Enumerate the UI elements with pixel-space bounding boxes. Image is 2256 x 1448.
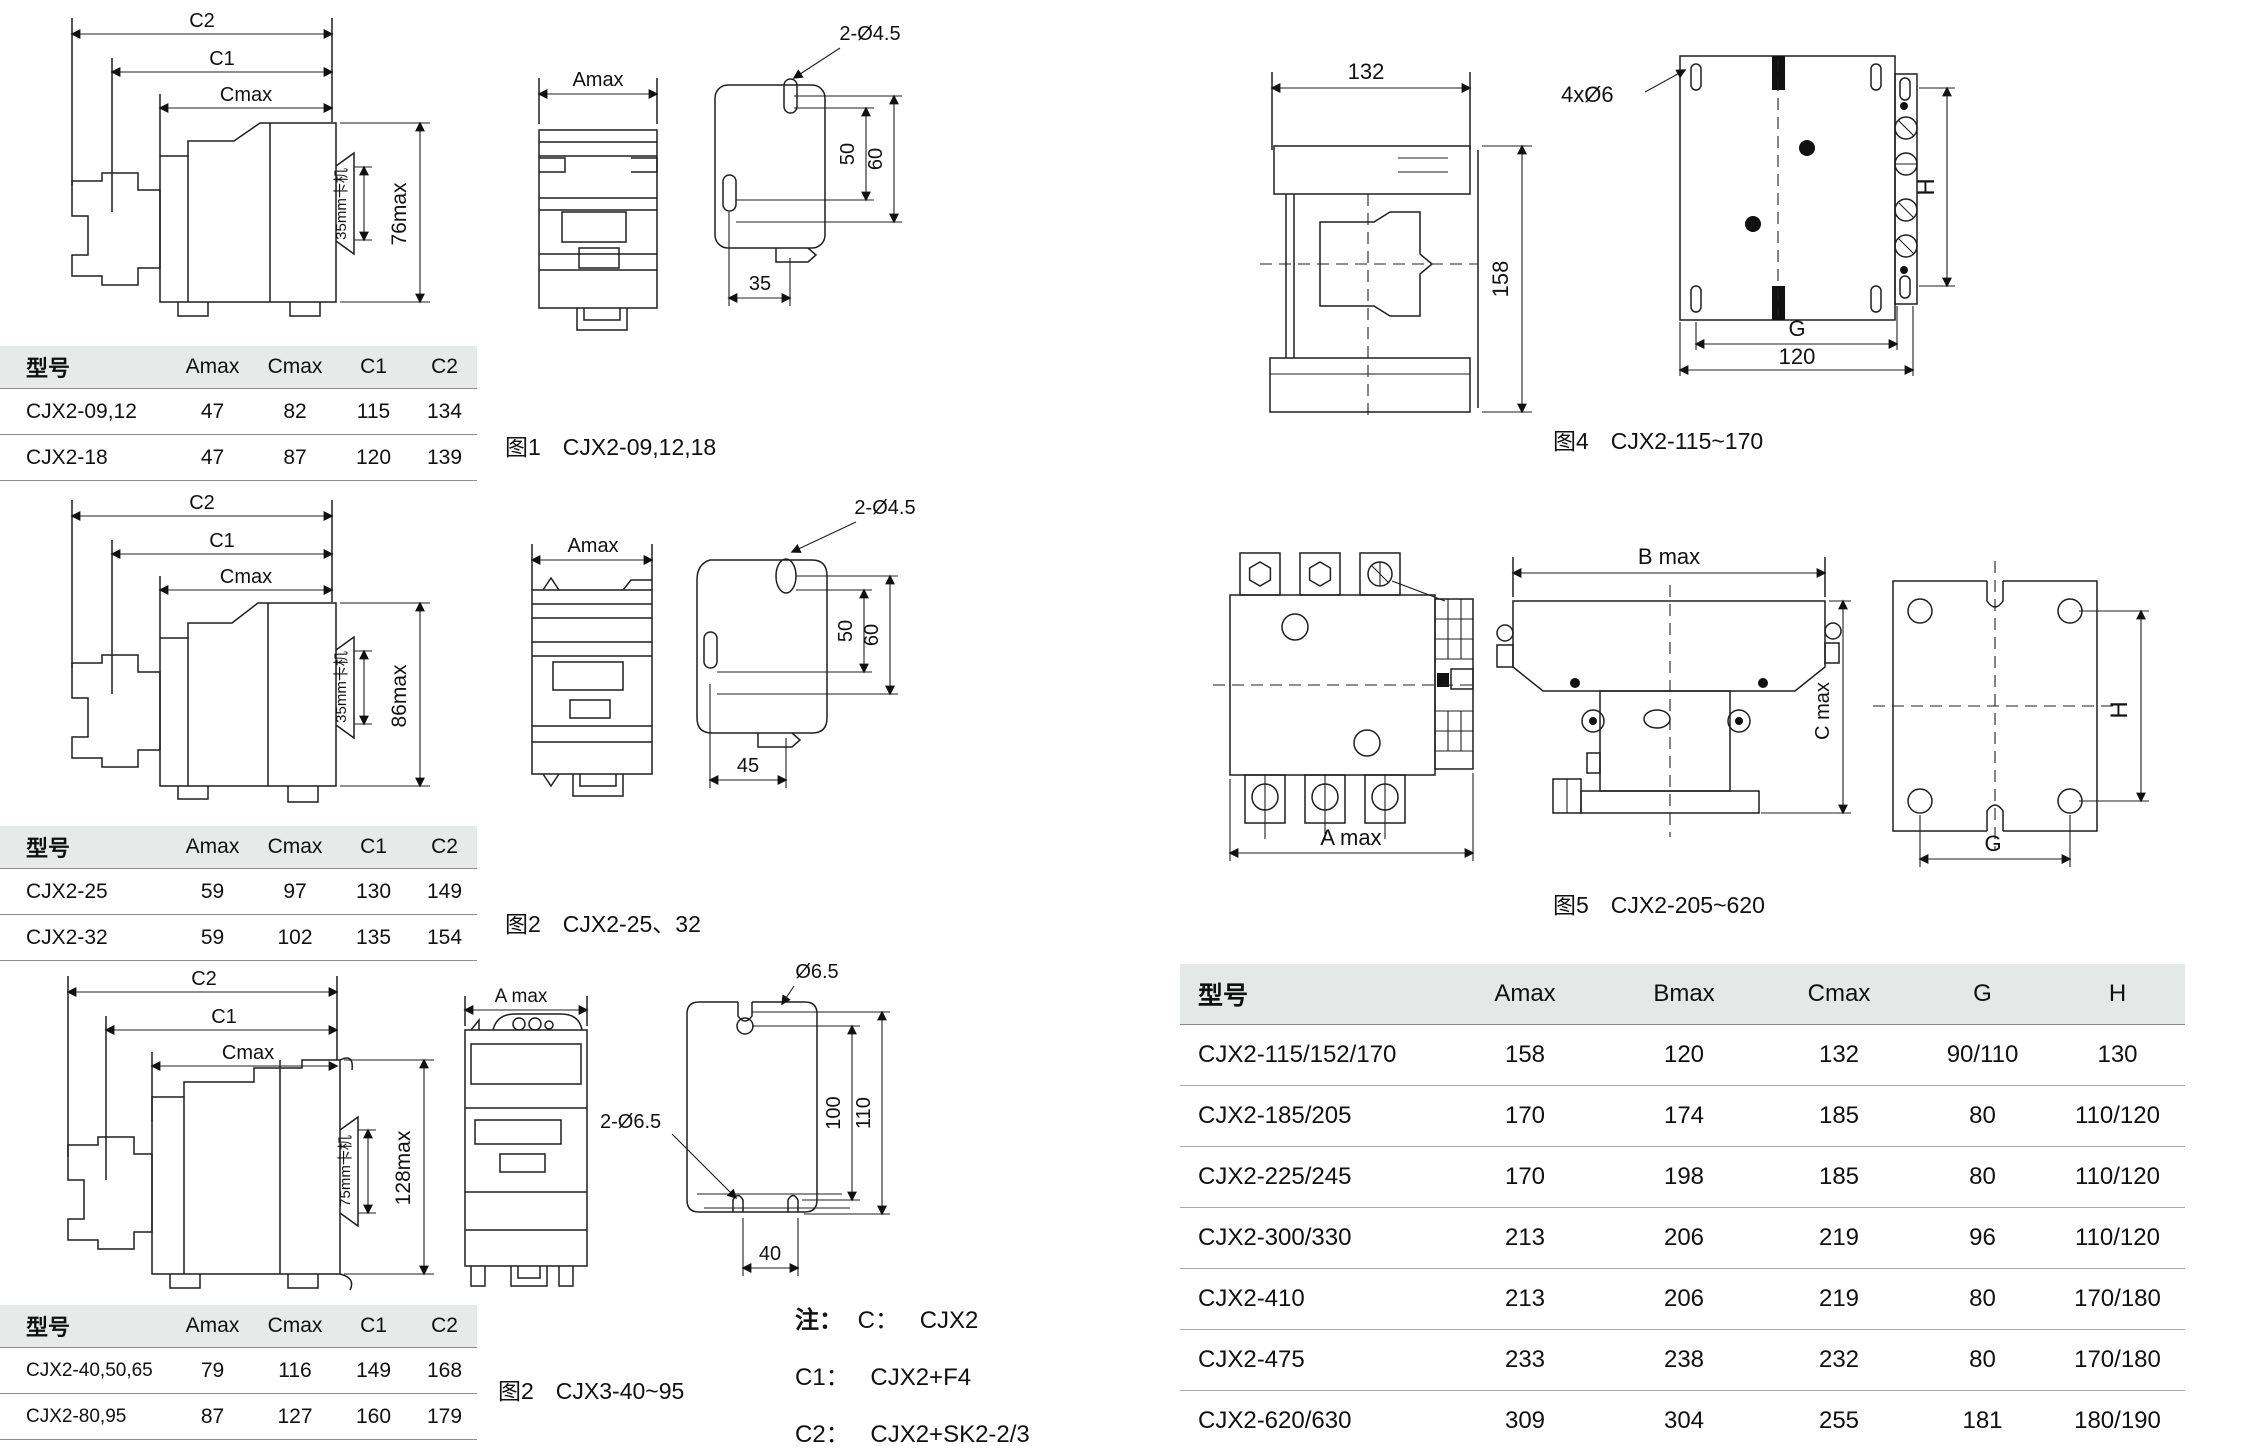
fig2-caption-text: CJX2-25、32 bbox=[563, 911, 701, 937]
fig1-holes-label: 2-Ø4.5 bbox=[839, 23, 900, 45]
t2-r2-c2: 154 bbox=[412, 915, 477, 961]
fig5-dim-h: H bbox=[2106, 701, 2133, 718]
fig4-dim-h: H bbox=[1913, 178, 1940, 195]
t1-r2-model: CJX2-18 bbox=[0, 435, 170, 481]
fig1-dim-60: 60 bbox=[865, 148, 887, 170]
t1-r2-c2: 139 bbox=[412, 435, 477, 481]
fig3-dim-40: 40 bbox=[759, 1243, 781, 1265]
fig1-mounting-view-drawing: 2-Ø4.5 50 60 35 bbox=[690, 12, 925, 327]
t2-header-cmax: Cmax bbox=[255, 826, 335, 869]
fig1-dim-height: 76max bbox=[388, 182, 411, 246]
t3-header-cmax: Cmax bbox=[255, 1305, 335, 1348]
fig3-mount-dimensions bbox=[672, 986, 890, 1276]
fig4-caption-number: 图4 bbox=[1553, 428, 1589, 454]
bt-r3-amax: 170 bbox=[1445, 1147, 1605, 1208]
t3-r1-cmax: 116 bbox=[255, 1348, 335, 1394]
table-row: CJX2-32 59 102 135 154 bbox=[0, 915, 477, 961]
t2-r1-c2: 149 bbox=[412, 869, 477, 915]
fig2-dim-cmax: Cmax bbox=[220, 566, 272, 588]
bt-r7-cmax: 255 bbox=[1763, 1391, 1915, 1448]
fig2-dim-50: 50 bbox=[835, 620, 857, 642]
t3-header-amax: Amax bbox=[170, 1305, 255, 1348]
fig5-side-view-drawing: B max C max bbox=[1495, 515, 1855, 845]
fig2-mounting-view-drawing: 2-Ø4.5 50 60 45 bbox=[640, 486, 930, 811]
fig5-dim-g: G bbox=[1984, 831, 2001, 856]
bt-r6-h: 170/180 bbox=[2050, 1330, 2185, 1391]
fig4-dim-120: 120 bbox=[1779, 344, 1816, 369]
fig2-holes-label: 2-Ø4.5 bbox=[854, 497, 915, 519]
t2-r1-cmax: 97 bbox=[255, 869, 335, 915]
table-row: CJX2-40,50,65 79 116 149 168 bbox=[0, 1348, 477, 1394]
fig3-caption-number: 图2 bbox=[498, 1378, 534, 1404]
fig2-dim-c2: C2 bbox=[189, 492, 215, 514]
bt-r5-cmax: 219 bbox=[1763, 1269, 1915, 1330]
t1-r1-amax: 47 bbox=[170, 389, 255, 435]
fig3-dim-c2: C2 bbox=[191, 968, 217, 990]
fig5-mounting-view-drawing: H G bbox=[1865, 545, 2165, 875]
bt-r1-cmax: 132 bbox=[1763, 1025, 1915, 1086]
table-row: CJX2-475 233 238 232 80 170/180 bbox=[1180, 1330, 2185, 1391]
t3-r1-c2: 168 bbox=[412, 1348, 477, 1394]
fig5-mount-dimensions bbox=[1920, 611, 2149, 867]
bt-r3-h: 110/120 bbox=[2050, 1147, 2185, 1208]
fig3-dim-amax: A max bbox=[495, 986, 548, 1007]
t3-r1-model: CJX2-40,50,65 bbox=[0, 1348, 170, 1394]
bt-r7-amax: 309 bbox=[1445, 1391, 1605, 1448]
bt-r7-h: 180/190 bbox=[2050, 1391, 2185, 1448]
t1-r2-amax: 47 bbox=[170, 435, 255, 481]
fig1-dim-35: 35 bbox=[749, 273, 771, 295]
t2-r2-amax: 59 bbox=[170, 915, 255, 961]
bt-r6-model: CJX2-475 bbox=[1180, 1330, 1445, 1391]
t3-header-c2: C2 bbox=[412, 1305, 477, 1348]
fig1-front-outline bbox=[539, 78, 657, 330]
t3-r1-amax: 79 bbox=[170, 1348, 255, 1394]
bt-r4-g: 96 bbox=[1915, 1208, 2050, 1269]
t2-r2-cmax: 102 bbox=[255, 915, 335, 961]
bt-r2-g: 80 bbox=[1915, 1086, 2050, 1147]
fig1-rail-label: 35mm卡机 bbox=[333, 168, 350, 240]
bt-r7-model: CJX2-620/630 bbox=[1180, 1391, 1445, 1448]
t2-r2-c1: 135 bbox=[335, 915, 412, 961]
fig1-dim-amax: Amax bbox=[572, 69, 623, 91]
fig5-dim-bmax: B max bbox=[1638, 544, 1700, 569]
t3-r2-c2: 179 bbox=[412, 1394, 477, 1440]
note-line-1: 注： C： CJX2 bbox=[795, 1300, 1030, 1335]
fig5-front-outline bbox=[1213, 553, 1473, 839]
fig4-mount-outline bbox=[1680, 56, 1917, 320]
fig5-mount-outline bbox=[1873, 561, 2117, 851]
bt-r2-bmax: 174 bbox=[1605, 1086, 1763, 1147]
bt-r4-cmax: 219 bbox=[1763, 1208, 1915, 1269]
note-3-key: C2： bbox=[795, 1421, 850, 1448]
fig3-hole-top-label: Ø6.5 bbox=[795, 961, 838, 983]
bt-r2-amax: 170 bbox=[1445, 1086, 1605, 1147]
bt-r3-cmax: 185 bbox=[1763, 1147, 1915, 1208]
fig1-dim-c2: C2 bbox=[189, 10, 215, 32]
fig5-side-dimensions bbox=[1513, 557, 1851, 813]
fig4-side-view-drawing: 132 158 bbox=[1248, 26, 1538, 426]
fig1-mount-dimensions bbox=[729, 48, 902, 306]
bt-header-cmax: Cmax bbox=[1763, 964, 1915, 1025]
t1-r1-cmax: 82 bbox=[255, 389, 335, 435]
bt-r4-h: 110/120 bbox=[2050, 1208, 2185, 1269]
t1-header-cmax: Cmax bbox=[255, 346, 335, 389]
table-row: CJX2-185/205 170 174 185 80 110/120 bbox=[1180, 1086, 2185, 1147]
bt-r4-bmax: 206 bbox=[1605, 1208, 1763, 1269]
t2-header-amax: Amax bbox=[170, 826, 255, 869]
fig2-dim-height: 86max bbox=[388, 664, 411, 728]
bt-r2-cmax: 185 bbox=[1763, 1086, 1915, 1147]
t1-r1-c1: 115 bbox=[335, 389, 412, 435]
bt-header-amax: Amax bbox=[1445, 964, 1605, 1025]
fig3-holes-label: 2-Ø6.5 bbox=[600, 1111, 661, 1133]
bt-r1-g: 90/110 bbox=[1915, 1025, 2050, 1086]
fig2-dim-c1: C1 bbox=[209, 530, 235, 552]
fig3-caption: 图2CJX3-40~95 bbox=[498, 1372, 684, 1406]
fig2-dim-60: 60 bbox=[861, 624, 883, 646]
fig4-dim-158: 158 bbox=[1488, 261, 1513, 298]
bt-r5-bmax: 206 bbox=[1605, 1269, 1763, 1330]
t3-r1-c1: 149 bbox=[335, 1348, 412, 1394]
t2-header-c1: C1 bbox=[335, 826, 412, 869]
fig2-dimension-table: 型号 Amax Cmax C1 C2 CJX2-25 59 97 130 149… bbox=[0, 826, 477, 961]
bt-r5-model: CJX2-410 bbox=[1180, 1269, 1445, 1330]
t2-r1-model: CJX2-25 bbox=[0, 869, 170, 915]
bt-r4-model: CJX2-300/330 bbox=[1180, 1208, 1445, 1269]
t3-header-model: 型号 bbox=[0, 1305, 170, 1348]
bt-r5-g: 80 bbox=[1915, 1269, 2050, 1330]
t1-r1-c2: 134 bbox=[412, 389, 477, 435]
bt-r1-amax: 158 bbox=[1445, 1025, 1605, 1086]
t3-r2-amax: 87 bbox=[170, 1394, 255, 1440]
contactor-dimensions-datasheet-page: C2 C1 Cmax 35mm卡机 76max Amax bbox=[0, 0, 2256, 1448]
bt-r3-bmax: 198 bbox=[1605, 1147, 1763, 1208]
fig1-caption: 图1CJX2-09,12,18 bbox=[505, 428, 716, 462]
fig4-dim-132: 132 bbox=[1348, 59, 1385, 84]
bt-r5-amax: 213 bbox=[1445, 1269, 1605, 1330]
bt-header-h: H bbox=[2050, 964, 2185, 1025]
fig3-dim-cmax: Cmax bbox=[222, 1042, 274, 1064]
fig4-holes-label: 4xØ6 bbox=[1561, 82, 1614, 107]
t1-r2-c1: 120 bbox=[335, 435, 412, 481]
fig2-front-outline bbox=[532, 544, 652, 796]
t1-r1-model: CJX2-09,12 bbox=[0, 389, 170, 435]
fig2-mount-dimensions bbox=[710, 522, 898, 788]
note-label: 注： bbox=[795, 1307, 843, 1334]
note-line-3: C2： CJX2+SK2-2/3 bbox=[795, 1414, 1030, 1448]
t3-r2-c1: 160 bbox=[335, 1394, 412, 1440]
bt-r1-model: CJX2-115/152/170 bbox=[1180, 1025, 1445, 1086]
table-row: CJX2-620/630 309 304 255 181 180/190 bbox=[1180, 1391, 2185, 1448]
fig5-dim-cmax: C max bbox=[1812, 682, 1834, 740]
t2-header-model: 型号 bbox=[0, 826, 170, 869]
fig2-caption: 图2CJX2-25、32 bbox=[505, 905, 701, 939]
note-1-key: C： bbox=[858, 1307, 899, 1334]
bt-header-g: G bbox=[1915, 964, 2050, 1025]
fig3-dim-height: 128max bbox=[392, 1130, 415, 1205]
fig4-caption-text: CJX2-115~170 bbox=[1611, 428, 1763, 454]
bt-r1-h: 130 bbox=[2050, 1025, 2185, 1086]
fig3-front-view-drawing: A max bbox=[455, 978, 600, 1290]
table-row: CJX2-410 213 206 219 80 170/180 bbox=[1180, 1269, 2185, 1330]
table-row: CJX2-80,95 87 127 160 179 bbox=[0, 1394, 477, 1440]
t1-header-c2: C2 bbox=[412, 346, 477, 389]
bt-r6-cmax: 232 bbox=[1763, 1330, 1915, 1391]
t2-r2-model: CJX2-32 bbox=[0, 915, 170, 961]
fig3-front-outline bbox=[465, 996, 587, 1286]
fig3-mounting-view-drawing: Ø6.5 2-Ø6.5 100 110 40 bbox=[592, 958, 912, 1296]
t3-header-c1: C1 bbox=[335, 1305, 412, 1348]
bt-r6-amax: 233 bbox=[1445, 1330, 1605, 1391]
bt-r5-h: 170/180 bbox=[2050, 1269, 2185, 1330]
fig3-dimension-table: 型号 Amax Cmax C1 C2 CJX2-40,50,65 79 116 … bbox=[0, 1305, 477, 1440]
note-2-value: CJX2+F4 bbox=[870, 1364, 971, 1391]
fig5-side-outline bbox=[1497, 585, 1841, 837]
table-row: CJX2-225/245 170 198 185 80 110/120 bbox=[1180, 1147, 2185, 1208]
t2-r1-amax: 59 bbox=[170, 869, 255, 915]
t1-header-amax: Amax bbox=[170, 346, 255, 389]
fig1-caption-text: CJX2-09,12,18 bbox=[563, 434, 716, 460]
table-row: CJX2-300/330 213 206 219 96 110/120 bbox=[1180, 1208, 2185, 1269]
fig1-dim-cmax: Cmax bbox=[220, 84, 272, 106]
fig5-dim-amax: A max bbox=[1320, 825, 1381, 850]
table-row: CJX2-115/152/170 158 120 132 90/110 130 bbox=[1180, 1025, 2185, 1086]
fig1-dim-c1: C1 bbox=[209, 48, 235, 70]
fig2-caption-number: 图2 bbox=[505, 911, 541, 937]
table-row: CJX2-25 59 97 130 149 bbox=[0, 869, 477, 915]
bt-r6-g: 80 bbox=[1915, 1330, 2050, 1391]
table-row: CJX2-09,12 47 82 115 134 bbox=[0, 389, 477, 435]
bt-r3-g: 80 bbox=[1915, 1147, 2050, 1208]
note-line-2: C1： CJX2+F4 bbox=[795, 1357, 1030, 1392]
fig2-dim-45: 45 bbox=[737, 755, 759, 777]
fig5-caption-number: 图5 bbox=[1553, 892, 1589, 918]
t3-r2-model: CJX2-80,95 bbox=[0, 1394, 170, 1440]
fig1-dimension-table: 型号 Amax Cmax C1 C2 CJX2-09,12 47 82 115 … bbox=[0, 346, 477, 481]
fig2-side-view-drawing: C2 C1 Cmax 35mm卡机 86max bbox=[2, 486, 476, 822]
fig2-dim-amax: Amax bbox=[567, 535, 618, 557]
note-3-value: CJX2+SK2-2/3 bbox=[870, 1421, 1029, 1448]
fig3-side-view-drawing: C2 C1 Cmax 75mm卡机 128max bbox=[2, 962, 476, 1302]
fig3-rail-label: 75mm卡机 bbox=[337, 1135, 354, 1207]
large-dimension-table: 型号 Amax Bmax Cmax G H CJX2-115/152/170 1… bbox=[1180, 964, 2185, 1448]
t1-header-model: 型号 bbox=[0, 346, 170, 389]
bt-r3-model: CJX2-225/245 bbox=[1180, 1147, 1445, 1208]
bt-header-model: 型号 bbox=[1180, 964, 1445, 1025]
fig1-dim-50: 50 bbox=[837, 143, 859, 165]
table-row: CJX2-18 47 87 120 139 bbox=[0, 435, 477, 481]
bt-r4-amax: 213 bbox=[1445, 1208, 1605, 1269]
note-2-key: C1： bbox=[795, 1364, 850, 1391]
bt-r2-h: 110/120 bbox=[2050, 1086, 2185, 1147]
fig3-caption-text: CJX3-40~95 bbox=[556, 1378, 685, 1404]
fig3-dim-c1: C1 bbox=[211, 1006, 237, 1028]
fig1-front-view-drawing: Amax bbox=[522, 58, 677, 333]
fig5-front-view-drawing: A max bbox=[1205, 515, 1475, 880]
t3-r2-cmax: 127 bbox=[255, 1394, 335, 1440]
fig2-rail-label: 35mm卡机 bbox=[333, 651, 350, 723]
t1-header-c1: C1 bbox=[335, 346, 412, 389]
t2-header-c2: C2 bbox=[412, 826, 477, 869]
fig1-side-dimensions bbox=[72, 34, 430, 302]
bt-r7-bmax: 304 bbox=[1605, 1391, 1763, 1448]
fig4-mounting-view-drawing: 4xØ6 H G 120 bbox=[1545, 18, 1965, 390]
bt-r6-bmax: 238 bbox=[1605, 1330, 1763, 1391]
fig3-dim-100: 100 bbox=[823, 1096, 845, 1129]
bt-r2-model: CJX2-185/205 bbox=[1180, 1086, 1445, 1147]
fig4-dim-g: G bbox=[1788, 316, 1805, 341]
fig5-caption-text: CJX2-205~620 bbox=[1611, 892, 1765, 918]
bt-r1-bmax: 120 bbox=[1605, 1025, 1763, 1086]
fig4-side-dimensions bbox=[1272, 88, 1532, 412]
fig1-mount-outline bbox=[715, 79, 825, 262]
fig2-mount-outline bbox=[697, 559, 827, 747]
fig1-side-view-drawing: C2 C1 Cmax 35mm卡机 76max bbox=[2, 4, 476, 340]
fig4-side-outline bbox=[1260, 72, 1478, 422]
fig4-caption: 图4CJX2-115~170 bbox=[1553, 422, 1763, 456]
fig2-side-dimensions bbox=[72, 516, 430, 786]
fig5-caption: 图5CJX2-205~620 bbox=[1553, 886, 1765, 920]
t2-r1-c1: 130 bbox=[335, 869, 412, 915]
bt-r7-g: 181 bbox=[1915, 1391, 2050, 1448]
note-1-value: CJX2 bbox=[920, 1307, 979, 1334]
t1-r2-cmax: 87 bbox=[255, 435, 335, 481]
fig1-caption-number: 图1 bbox=[505, 434, 541, 460]
fig3-side-dimensions bbox=[68, 992, 434, 1274]
bt-header-bmax: Bmax bbox=[1605, 964, 1763, 1025]
fig3-dim-110: 110 bbox=[853, 1097, 875, 1129]
notes-block: 注： C： CJX2 C1： CJX2+F4 C2： CJX2+SK2-2/3 bbox=[795, 1300, 1030, 1448]
